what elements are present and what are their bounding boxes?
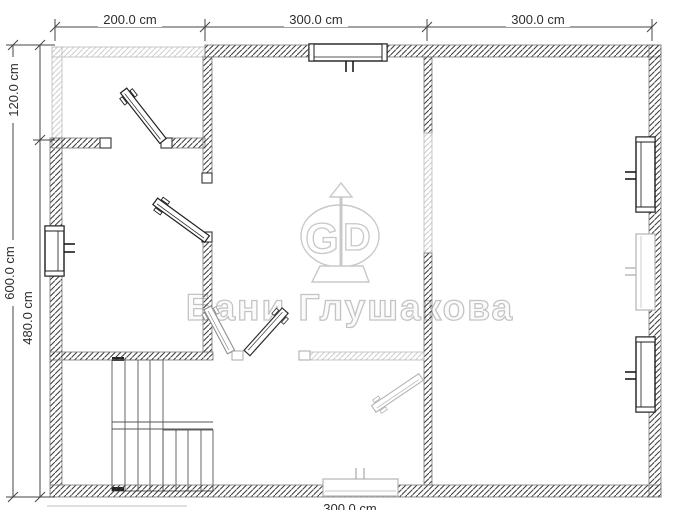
wall-vertical-1-upper xyxy=(203,57,212,175)
wall-horizontal-left-room-bottom xyxy=(50,352,213,360)
dim-label-bottom-300-partial: 300.0 cm xyxy=(323,501,376,510)
wall-vertical-2-top xyxy=(424,57,432,133)
wall-horizontal-center-light xyxy=(310,352,424,360)
dim-label-top-200: 200.0 cm xyxy=(98,12,162,27)
floor-plan-page: G D Бани Глушакова xyxy=(0,0,690,510)
wall-vertical-1-lower xyxy=(203,242,212,352)
wall-terrace-top-light xyxy=(52,47,205,57)
center-door-frame-left xyxy=(232,351,243,360)
logo-letter-right: D xyxy=(343,217,370,259)
logo-letter-left: G xyxy=(305,215,338,263)
center-door-frame-right xyxy=(299,351,310,360)
logo-base xyxy=(312,266,369,282)
floor-plan-drawing: G D Бани Глушакова xyxy=(0,0,690,510)
wall-terrace-divider-left xyxy=(52,138,100,148)
wall-vertical-2-light-section xyxy=(424,133,432,253)
watermark-brand-text: Бани Глушакова xyxy=(186,287,514,328)
left-room-door-frame-top xyxy=(202,173,212,183)
dim-label-top-300a: 300.0 cm xyxy=(284,12,348,27)
svg-text:200.0 cm: 200.0 cm xyxy=(103,12,156,27)
dim-label-left-480: 480.0 cm xyxy=(19,285,35,351)
wall-vertical-2-bottom xyxy=(424,253,432,485)
terrace-door-frame-left xyxy=(100,138,111,148)
dim-label-top-300b: 300.0 cm xyxy=(506,12,570,27)
svg-text:480.0 cm: 480.0 cm xyxy=(20,291,35,344)
wall-left xyxy=(50,138,62,485)
wall-top xyxy=(205,45,661,57)
svg-text:120.0 cm: 120.0 cm xyxy=(6,63,21,116)
svg-text:600.0 cm: 600.0 cm xyxy=(2,246,17,299)
wall-terrace-left-light xyxy=(52,47,62,140)
dim-label-left-120: 120.0 cm xyxy=(5,57,21,123)
dim-label-left-600: 600.0 cm xyxy=(1,240,17,306)
svg-text:300.0 cm: 300.0 cm xyxy=(289,12,342,27)
svg-text:300.0 cm: 300.0 cm xyxy=(511,12,564,27)
wall-terrace-divider-right xyxy=(172,138,205,148)
